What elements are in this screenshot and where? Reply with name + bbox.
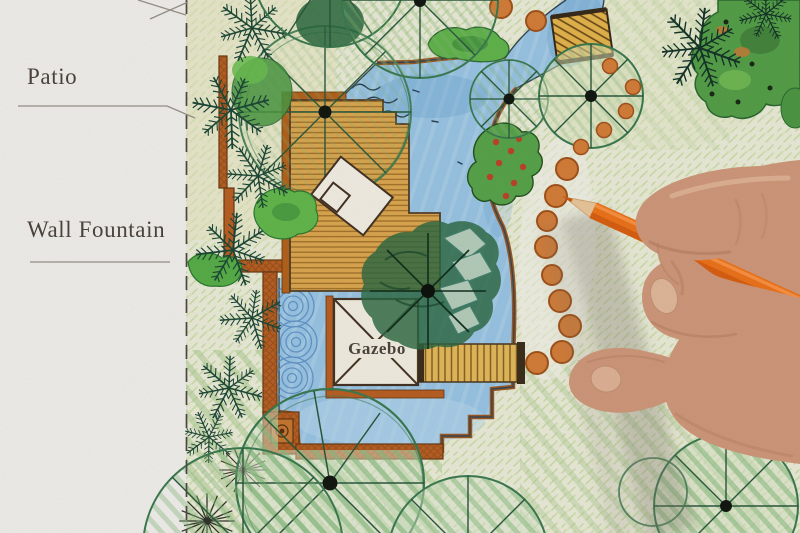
photo-landscape-plan: Gazebo — [0, 0, 800, 533]
photo-grain-overlay — [0, 0, 800, 533]
